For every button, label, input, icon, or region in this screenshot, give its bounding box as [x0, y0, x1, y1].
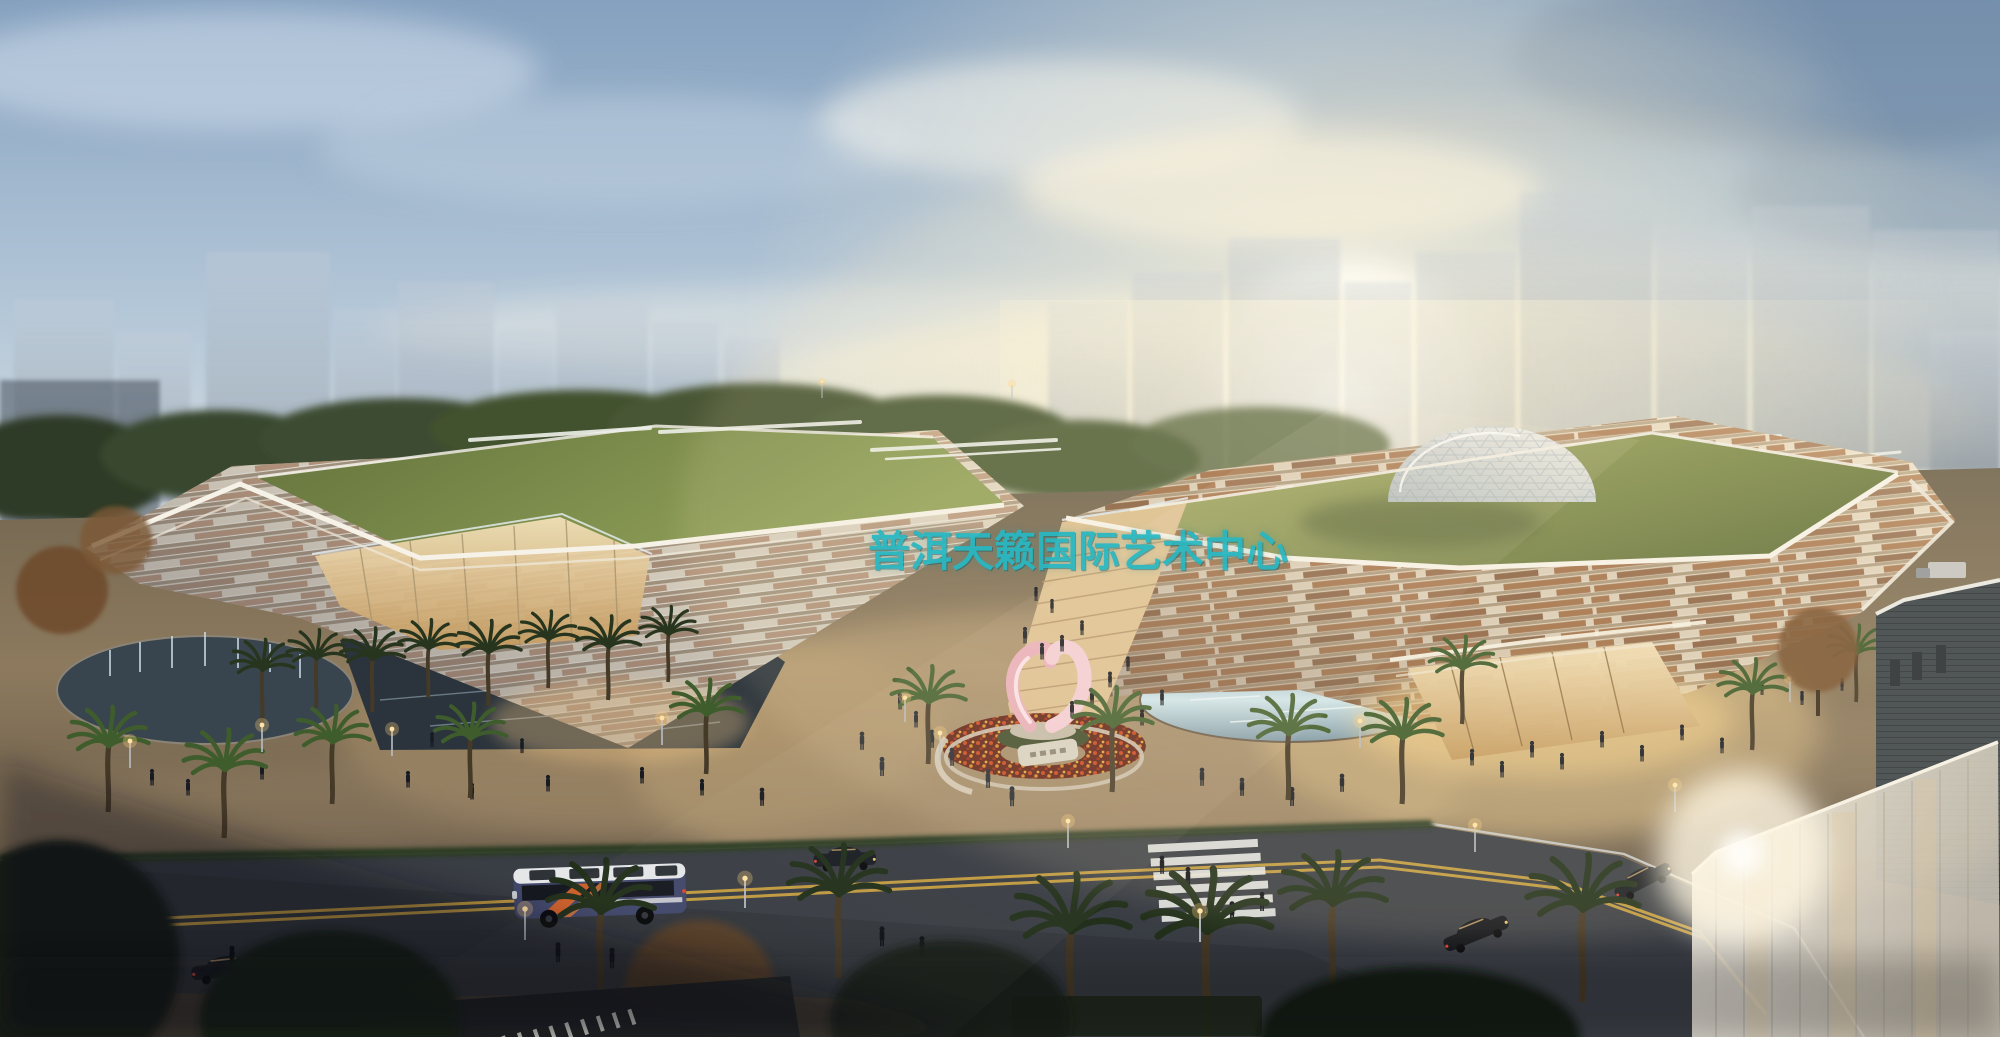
scene-svg: [0, 0, 2000, 1037]
dome-shadow: [1300, 496, 1540, 548]
architectural-rendering: 普洱天籁国际艺术中心: [0, 0, 2000, 1037]
